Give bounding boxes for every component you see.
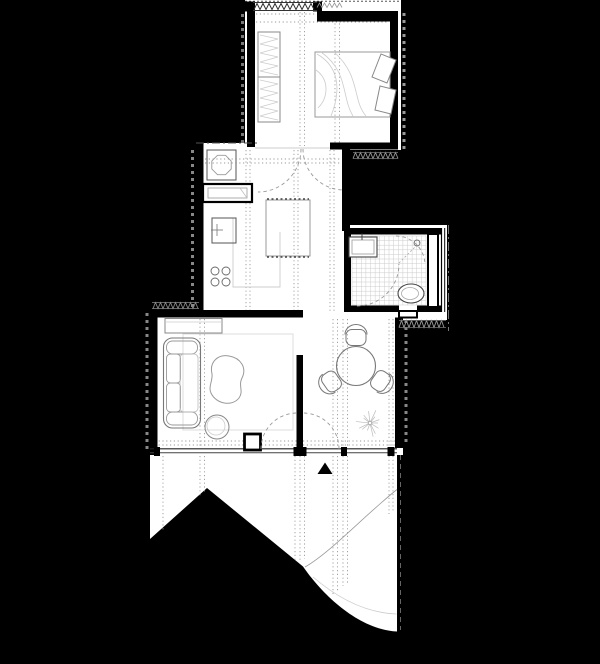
duct-shaft — [428, 234, 438, 307]
bath-window-leaf — [399, 311, 417, 318]
niche-cabinet — [203, 184, 252, 202]
wall-bedroom-top-right — [317, 11, 398, 22]
wall-dining-right — [395, 318, 403, 449]
wall-hatch-kitchen-left — [191, 150, 194, 307]
facade-post — [154, 447, 160, 456]
hatch-below-bath — [399, 321, 444, 328]
facade-post — [388, 447, 395, 456]
floor-plan-svg — [0, 0, 600, 664]
wall-partition — [297, 355, 304, 450]
facade-column — [245, 434, 261, 450]
wall-bedroom-bottom — [330, 143, 398, 150]
wall-living-left — [150, 310, 158, 455]
facade-post — [341, 447, 347, 456]
hatch-below-bedroom — [353, 153, 398, 159]
wall-kitchen-left — [196, 143, 204, 313]
wall-bedroom-left — [247, 2, 255, 147]
terrace-floor — [150, 455, 397, 632]
wall-hatch-living-left — [146, 313, 149, 449]
wall-bedroom-right — [390, 11, 398, 149]
wall-hatch-bedroom-left — [241, 14, 244, 143]
floor-plan — [0, 0, 600, 664]
wall-bath-top — [344, 228, 441, 235]
wall-bath-bottom-left — [351, 306, 399, 313]
wall-living-top — [150, 310, 303, 318]
wall-kitchen-right — [342, 147, 350, 231]
facade-post — [294, 447, 307, 456]
kitchen-floor — [196, 143, 345, 313]
wall-hatch-bedroom-right — [403, 13, 406, 149]
wall-hatch-dining-right — [405, 320, 408, 442]
